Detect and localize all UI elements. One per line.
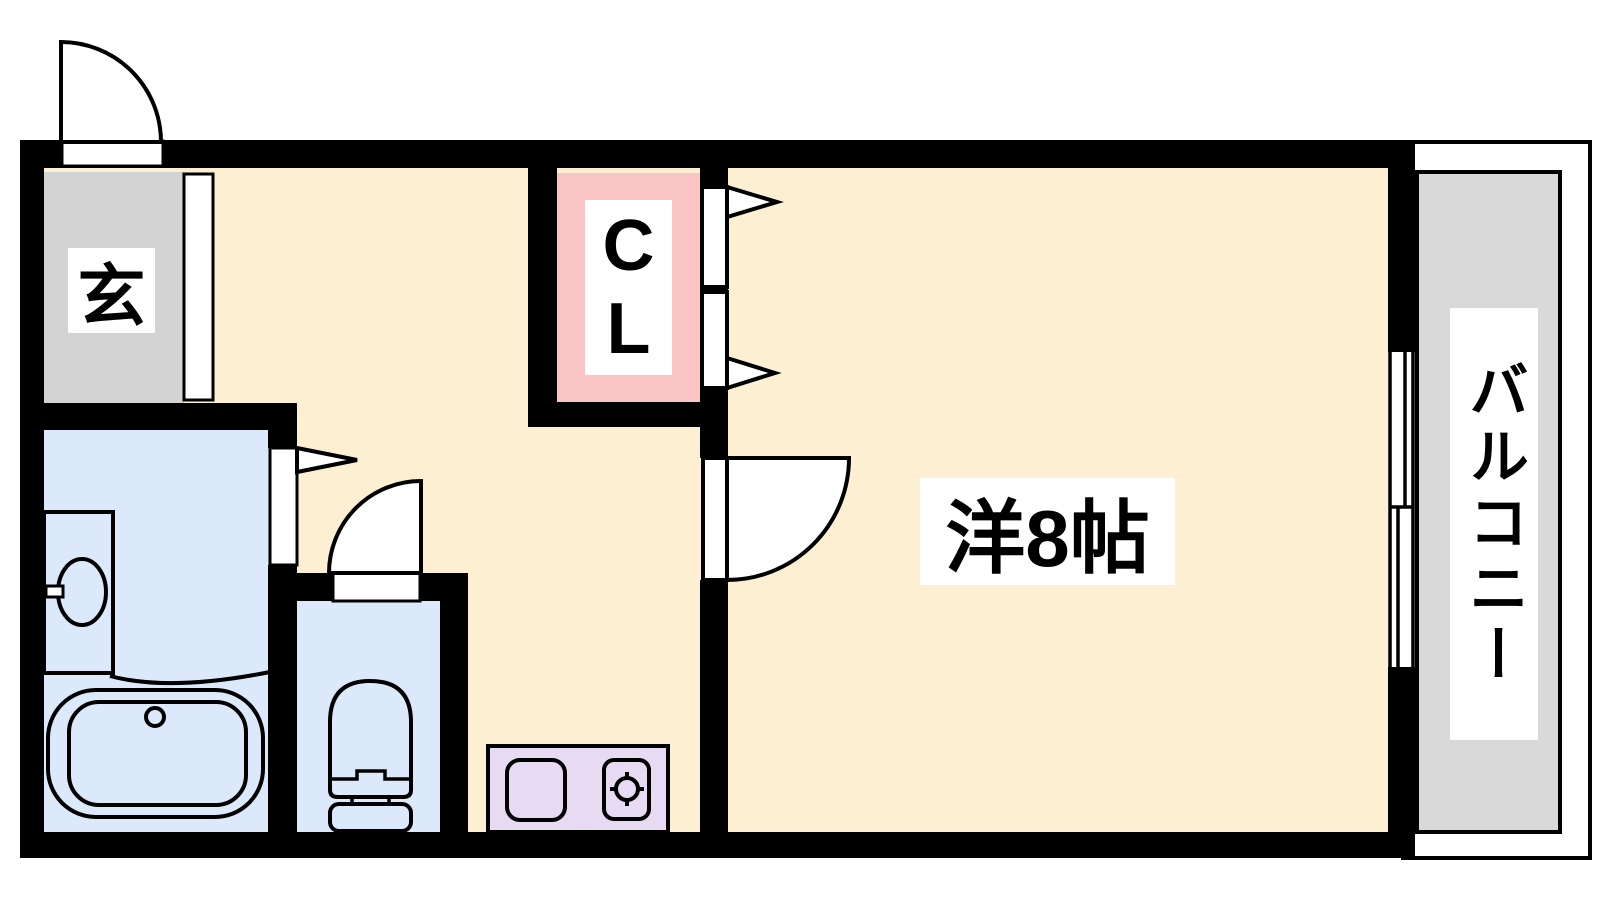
- wall-bath-right-upper: [268, 403, 297, 448]
- entrance-door-swing-icon: [61, 42, 161, 142]
- washbasin-faucet-icon: [46, 586, 63, 597]
- sliding-window-icon: [1388, 352, 1415, 667]
- room-door-leaf: [703, 458, 727, 580]
- wall-room-divider-lower: [700, 580, 728, 858]
- wall-closet-bottom: [528, 402, 700, 427]
- window-opening: [1388, 352, 1415, 667]
- main-room-label: 洋8帖: [920, 478, 1175, 585]
- entrance-label: 玄: [68, 248, 155, 333]
- bathroom-floor: [44, 430, 270, 832]
- wall-entrance-bath: [20, 403, 297, 430]
- closet-door-lower: [702, 292, 727, 388]
- closet-label-line2: L: [607, 293, 651, 365]
- wall-closet-left: [528, 168, 557, 427]
- toilet-door-opening: [333, 573, 420, 601]
- wall-bath-right-lower: [268, 565, 297, 832]
- balcony-label: バルコニー: [1450, 308, 1538, 740]
- wall-right-lower: [1388, 667, 1415, 858]
- wall-top: [20, 140, 1403, 168]
- bathroom-door-opening: [270, 448, 297, 565]
- closet-door-upper: [702, 187, 727, 287]
- entrance-door-opening: [62, 141, 163, 166]
- wall-toilet-right: [440, 573, 468, 832]
- floor-plan: 玄 C L 洋8帖 バルコニー: [0, 0, 1600, 900]
- floor-plan-drawing: [0, 0, 1600, 900]
- wall-left: [20, 140, 44, 858]
- wall-right-upper: [1388, 142, 1415, 352]
- closet-label: C L: [585, 200, 672, 375]
- closet-label-line1: C: [603, 210, 655, 282]
- wall-room-divider-middle: [700, 388, 728, 458]
- entrance-step: [184, 174, 213, 400]
